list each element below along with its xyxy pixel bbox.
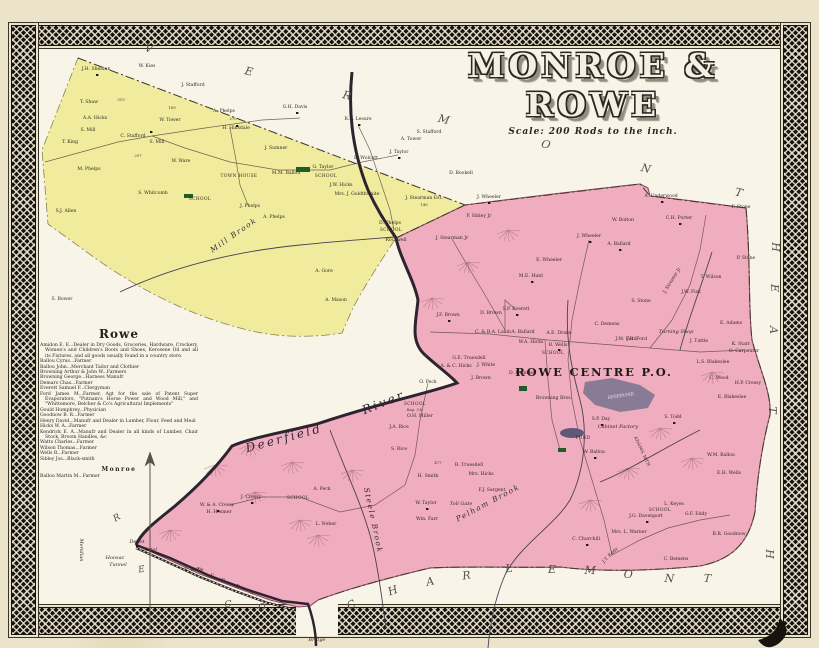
business-directory: Rowe Amidon E. E...Dealer in Dry Goods, … [40, 327, 198, 479]
vermont-letter: T [734, 185, 746, 200]
map-label: M.E. Hunt [519, 273, 543, 279]
map-label: P. Sibley Jr [467, 213, 493, 219]
map-label: POND [575, 436, 590, 441]
directory-entry: Ballou Martin M...Farmer [40, 474, 198, 479]
map-label: G. Taylor [313, 164, 335, 170]
map-label: A.A. Hicks [82, 115, 108, 121]
map-label: L. Keyes [664, 501, 684, 507]
map-label: F.J. Sargent [479, 487, 506, 493]
map-label: B.R. Goodnow [712, 531, 745, 537]
directory-entry: Sibley Jos...Black-smith [40, 457, 198, 462]
map-label: Cabinet Factory [598, 424, 639, 430]
directory-monroe-title: Monroe [40, 466, 198, 473]
atlas-page: ROWE CENTRE P.O.DeerfieldRiverPelham Bro… [0, 0, 819, 648]
directory-rowe-title: Rowe [40, 327, 198, 341]
map-label: K. Starr [732, 341, 751, 347]
map-label: E. Wolcott [354, 155, 378, 161]
map-label: J. Stafford [180, 82, 204, 88]
heath-letter: H [763, 548, 776, 559]
map-label: Meridian [78, 537, 84, 561]
map-label: J.H. Sheldon [81, 66, 111, 72]
map-label: Browning Bros. [536, 395, 573, 401]
map-label: C. Wood [709, 375, 728, 381]
berkshire-co-letter: E [137, 564, 147, 575]
map-label: G.E. Truesdell [452, 355, 486, 361]
map-label: D. Phelps [379, 220, 402, 226]
map-label: W. Ware [172, 158, 191, 164]
map-title-block: MONROE & ROWE Scale: 200 Rods to the inc… [418, 46, 768, 137]
map-label: Bridge [307, 637, 325, 643]
map-label: J.G. Davenport [628, 513, 663, 519]
map-label: J. Stearman Jr [435, 235, 469, 241]
map-scale: Scale: 200 Rods to the inch. [418, 127, 768, 137]
map-label: J. Tuttle [689, 338, 709, 344]
map-label: C. & B.A. Lamb [475, 329, 511, 335]
map-label: A. Phelps [212, 108, 235, 114]
map-label: L. Neher [316, 521, 337, 527]
charlemont-letter: N [663, 572, 675, 586]
map-label: Hotel [142, 547, 157, 553]
region-monroe [42, 58, 465, 336]
map-label: M. Phelps [77, 166, 101, 172]
charlemont-letter: R [461, 569, 472, 583]
directory-rowe-entries: Amidon E. E...Dealer in Dry Goods, Groce… [40, 343, 198, 462]
map-label: W. & A. Cressy [200, 502, 235, 508]
map-label: SCHOOL [649, 508, 671, 513]
map-label: J. Wheeler [476, 194, 502, 200]
heath-letter: A [767, 325, 780, 334]
map-label: B. Wells [549, 342, 568, 348]
map-label: R.E. Lesure [344, 116, 371, 122]
charlemont-letter: A [424, 574, 436, 589]
map-label: W.A. Hicks [519, 339, 544, 345]
map-label: G.F. Eddy [685, 511, 708, 517]
map-label: Mrs. J. Goldthwaite [335, 191, 380, 197]
map-label: A. Mason [324, 297, 347, 303]
map-label: J.M. Ford [614, 336, 636, 342]
map-label: J. Wheeler [576, 233, 602, 239]
map-label: J.F. Brown [435, 312, 460, 318]
map-label: 169 [168, 105, 176, 110]
map-label: E. Wheeler [536, 257, 563, 263]
map-label: S. Stone [631, 298, 651, 304]
map-label: S. Mill [80, 127, 96, 133]
map-label: M.M. Ballou [272, 170, 301, 176]
map-label: H.P. Cressy [735, 380, 762, 386]
map-label: 270 [229, 116, 237, 121]
berkshire-co-letter: R [111, 512, 123, 525]
map-label: G.H. Davis [283, 104, 308, 110]
map-label: C. Stafford [120, 133, 145, 139]
map-label: S. Bower [52, 296, 74, 302]
map-label: E. Kittle [184, 567, 203, 573]
map-label: T. Shaw [80, 99, 98, 105]
vermont-letter: E [242, 64, 254, 79]
map-label: Bap. Ch. [407, 407, 423, 412]
map-label: D. Brown [480, 310, 502, 316]
map-label: S. Todd [664, 414, 681, 420]
map-label: 319 [117, 97, 125, 102]
map-label: 477 [434, 460, 442, 465]
map-label: Wm. Farr [416, 516, 439, 522]
map-label: E.H. Wells [717, 470, 742, 476]
map-label: Mrs. L. Warner [611, 529, 647, 535]
charlemont-letter: C [345, 597, 359, 613]
map-label: O.H. Miller [407, 413, 434, 419]
map-label: H. Smith [418, 473, 439, 479]
map-label: C. Churchill [572, 536, 600, 542]
map-label: 146 [420, 202, 428, 207]
map-label: J. White [476, 362, 495, 368]
map-label: Mrs. Hicks [468, 471, 494, 477]
directory-entry: Amidon E. E...Dealer in Dry Goods, Groce… [40, 343, 198, 359]
map-label: P. Stone [737, 255, 756, 261]
map-label: R. Truesdell [455, 462, 484, 468]
map-label: J. Stearman Est. [404, 195, 443, 201]
map-label: D. Bookell [449, 170, 473, 176]
map-label: E. Adams [720, 320, 743, 326]
map-label: L.S. Blakeslee [697, 359, 730, 365]
map-label: A. Underwood [643, 193, 677, 199]
map-label: A.E. Drake [545, 330, 571, 336]
map-label: Tunnel [109, 562, 127, 568]
charlemont-letter: T [703, 572, 713, 586]
map-label: J. Taylor [389, 149, 410, 155]
map-label: SCHOOL [315, 174, 337, 179]
map-label: O. Carpenter [729, 348, 760, 354]
vermont-letter: O [540, 137, 552, 152]
map-label: S. Mill [149, 139, 165, 145]
map-label: C.H. Porter [666, 215, 693, 221]
map-label: W. Tower [159, 117, 181, 123]
map-label: SCHOOL [380, 228, 402, 233]
map-label: S.P. Everett [503, 306, 530, 312]
heath-letter: H [769, 241, 782, 252]
vermont-letter: V [143, 41, 155, 56]
directory-entry: Kendrick E. A...Manufr and Dealer in all… [40, 430, 198, 441]
map-label: S.J. Allen [56, 208, 77, 214]
map-label: W. Kies [139, 63, 156, 69]
map-label: S. Whitcomb [138, 190, 168, 196]
map-label: J.W. Hicks [329, 182, 354, 188]
map-label: SCHOOL [287, 496, 309, 501]
map-label: A. Ballard [510, 329, 534, 335]
map-label: J.W. Fisk [680, 289, 701, 295]
map-label: J. Sumner [264, 145, 289, 151]
map-label: T. King [62, 139, 78, 145]
map-label: F. Stone [732, 204, 751, 210]
map-label: J.A. Rice [388, 424, 409, 430]
map-label: Depot [128, 539, 145, 545]
map-label: W.M. Ballou [707, 452, 735, 458]
map-label: A. Peck [312, 486, 330, 492]
berkshire-co-letter: O [258, 603, 266, 613]
page-title: MONROE & ROWE [418, 46, 768, 124]
map-label: TOWN HOUSE [221, 174, 258, 179]
map-label: A. Ballard [606, 241, 630, 247]
berkshire-co-letter: C [225, 600, 232, 610]
map-label: J. Brown [470, 375, 491, 381]
map-label: A. & C. Hicks [439, 363, 472, 369]
map-label: W. Bolton [612, 217, 634, 223]
charlemont-letter: O [623, 568, 633, 582]
map-label: S. Rice [391, 446, 407, 452]
map-label: W. Taylor [415, 500, 437, 506]
heath-letter: E [768, 283, 781, 292]
vermont-letter: N [639, 161, 653, 176]
map-label: A. Gore [314, 268, 333, 274]
map-label: H. Hosmer [206, 509, 232, 515]
charlemont-letter: E [547, 563, 556, 576]
corner-ornament [758, 618, 787, 647]
map-label: Hoosac [105, 555, 125, 561]
map-label: A. Phelps [262, 214, 285, 220]
map-label: Rockwell [385, 237, 407, 243]
map-label: S.P. Day [592, 416, 611, 422]
directory-entry: Ford James M...Farmer. Agt for the sale … [40, 392, 198, 408]
charlemont-letter: H [385, 583, 400, 599]
map-label: C. Bemens [664, 556, 689, 562]
map-label: D. Holmes [509, 370, 534, 376]
charlemont-letter: M [583, 564, 596, 577]
map-label: Toll Gate [450, 501, 473, 507]
map-label: J. Phelps [239, 203, 261, 209]
map-label: Turning Shop [659, 329, 694, 335]
map-label: O. Peck [419, 379, 437, 385]
map-label: T. Wilson [701, 274, 722, 280]
map-label: ROWE CENTRE P.O. [515, 365, 672, 379]
directory-monroe-entries: Ballou Martin M...Farmer [40, 474, 198, 479]
map-label: SCHOOL [542, 351, 564, 356]
map-label: 297 [134, 153, 142, 158]
map-label: J. Cressy [240, 494, 262, 500]
map-label: H. Hinsdale [222, 125, 250, 131]
map-label: W. Ballou [583, 449, 605, 455]
map-label: SCHOOL [189, 197, 211, 202]
map-label: C. Demens [594, 321, 620, 327]
map-label: E. Blakeslee [718, 394, 747, 400]
charlemont-letter: L [504, 562, 513, 575]
